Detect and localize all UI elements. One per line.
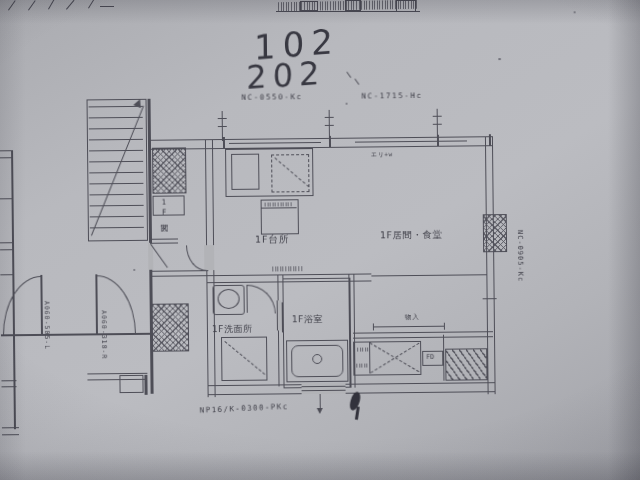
pen-tick [354, 79, 359, 85]
bottom-door-gap [301, 383, 345, 394]
window-jamb [223, 137, 225, 149]
dust-speck [133, 269, 135, 271]
entry-door-code: NP16/K-0300-PKc [200, 402, 289, 415]
right-wall-tick [483, 298, 497, 299]
under-stair-box [119, 375, 143, 393]
corridor-wall [150, 270, 208, 277]
under-stair-stub [144, 375, 147, 395]
grid-tick [218, 118, 227, 119]
dust-speck [498, 58, 501, 60]
louver-hatch [445, 348, 487, 380]
entrance-label: 1F玄関 [159, 198, 169, 220]
edge-wall-stub [1, 380, 16, 387]
edge-wall-stub [2, 427, 19, 435]
grid-tick [325, 125, 334, 126]
grid-tick [325, 117, 334, 118]
sleeve-note: エリ+w [371, 150, 393, 159]
closet-note-scribble [357, 348, 368, 352]
handwritten-unit-number-2: 202 [246, 54, 325, 97]
bathroom-label: 1F浴室 [292, 313, 323, 326]
closet-top-wall [353, 331, 493, 338]
window-jamb [329, 136, 331, 148]
floorplan-photo: 102 202 NC-0550-Kc NC-1715-Hc エリ+w [0, 0, 640, 480]
pipe-space [483, 214, 507, 252]
ub-note-scribble [272, 266, 302, 271]
washroom-door-leaf [246, 285, 248, 313]
washbasin-bowl [218, 289, 240, 309]
closet-dim-tick [373, 323, 374, 330]
kitchen-window-code: NC-0550-Kc [241, 92, 302, 102]
door-arc-left [2, 276, 42, 335]
grid-tick [218, 126, 227, 127]
edge-wall-stub [0, 198, 12, 200]
bathtub-drain [312, 354, 322, 364]
living-dining-label: 1F居間・食堂 [380, 229, 443, 243]
shaft-hatch [152, 147, 186, 193]
kitchen-label: 1F台所 [255, 233, 290, 246]
drain-arrow-head [317, 408, 323, 414]
kitchen-door-arc [186, 245, 207, 271]
closet-dim-tick [444, 323, 445, 330]
door-code-left-inner: A060-318-R [100, 310, 109, 359]
mid-wall-line [371, 274, 487, 277]
living-window-code: NC-1715-Hc [361, 91, 422, 101]
floorplan-drawing: 102 202 NC-0550-Kc NC-1715-Hc エリ+w [0, 0, 640, 480]
grid-tick [433, 124, 442, 125]
refrigerator-note-scribble [265, 202, 292, 206]
entrance-tile-hatch [151, 303, 190, 351]
dust-speck [346, 103, 348, 105]
pen-tick [346, 72, 351, 78]
grid-tick [433, 116, 442, 117]
washroom-label: 1F洗面所 [212, 323, 253, 336]
dust-speck [574, 11, 576, 13]
closet-note-scribble [356, 363, 369, 367]
pen-mark-tail [355, 407, 359, 420]
side-window-code: NC-0905-Kc [516, 230, 525, 282]
hall-wall-stub [150, 238, 178, 243]
drain-arrow-line [320, 394, 321, 409]
washroom-door-arc [246, 284, 275, 313]
closet-dim-line [373, 326, 445, 328]
closet-label: 物入 [405, 313, 420, 322]
door-code-left-outer: A060-505-L [43, 301, 52, 350]
pen-mark [349, 391, 362, 412]
fire-damper-label: FD [426, 353, 434, 361]
kitchen-sink [231, 154, 259, 190]
